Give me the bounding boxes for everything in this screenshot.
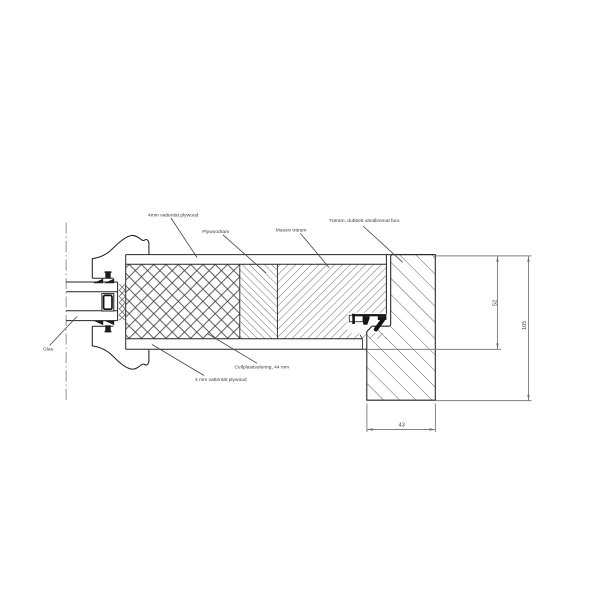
svg-text:Glas: Glas [43,347,54,353]
svg-text:Massiv träram: Massiv träram [276,228,307,234]
svg-text:43: 43 [399,422,405,428]
svg-text:4mm vattentät plywood: 4mm vattentät plywood [148,212,199,218]
svg-text:105: 105 [522,321,528,330]
svg-text:Träram, dubbelt vändlimmat fur: Träram, dubbelt vändlimmat furu [329,218,400,224]
svg-text:4 mm vattentät plywood: 4 mm vattentät plywood [195,377,247,383]
svg-text:Cellplastisolering, 44 mm: Cellplastisolering, 44 mm [235,365,290,371]
svg-text:52: 52 [492,300,498,306]
svg-text:Plywoodram: Plywoodram [202,229,229,235]
